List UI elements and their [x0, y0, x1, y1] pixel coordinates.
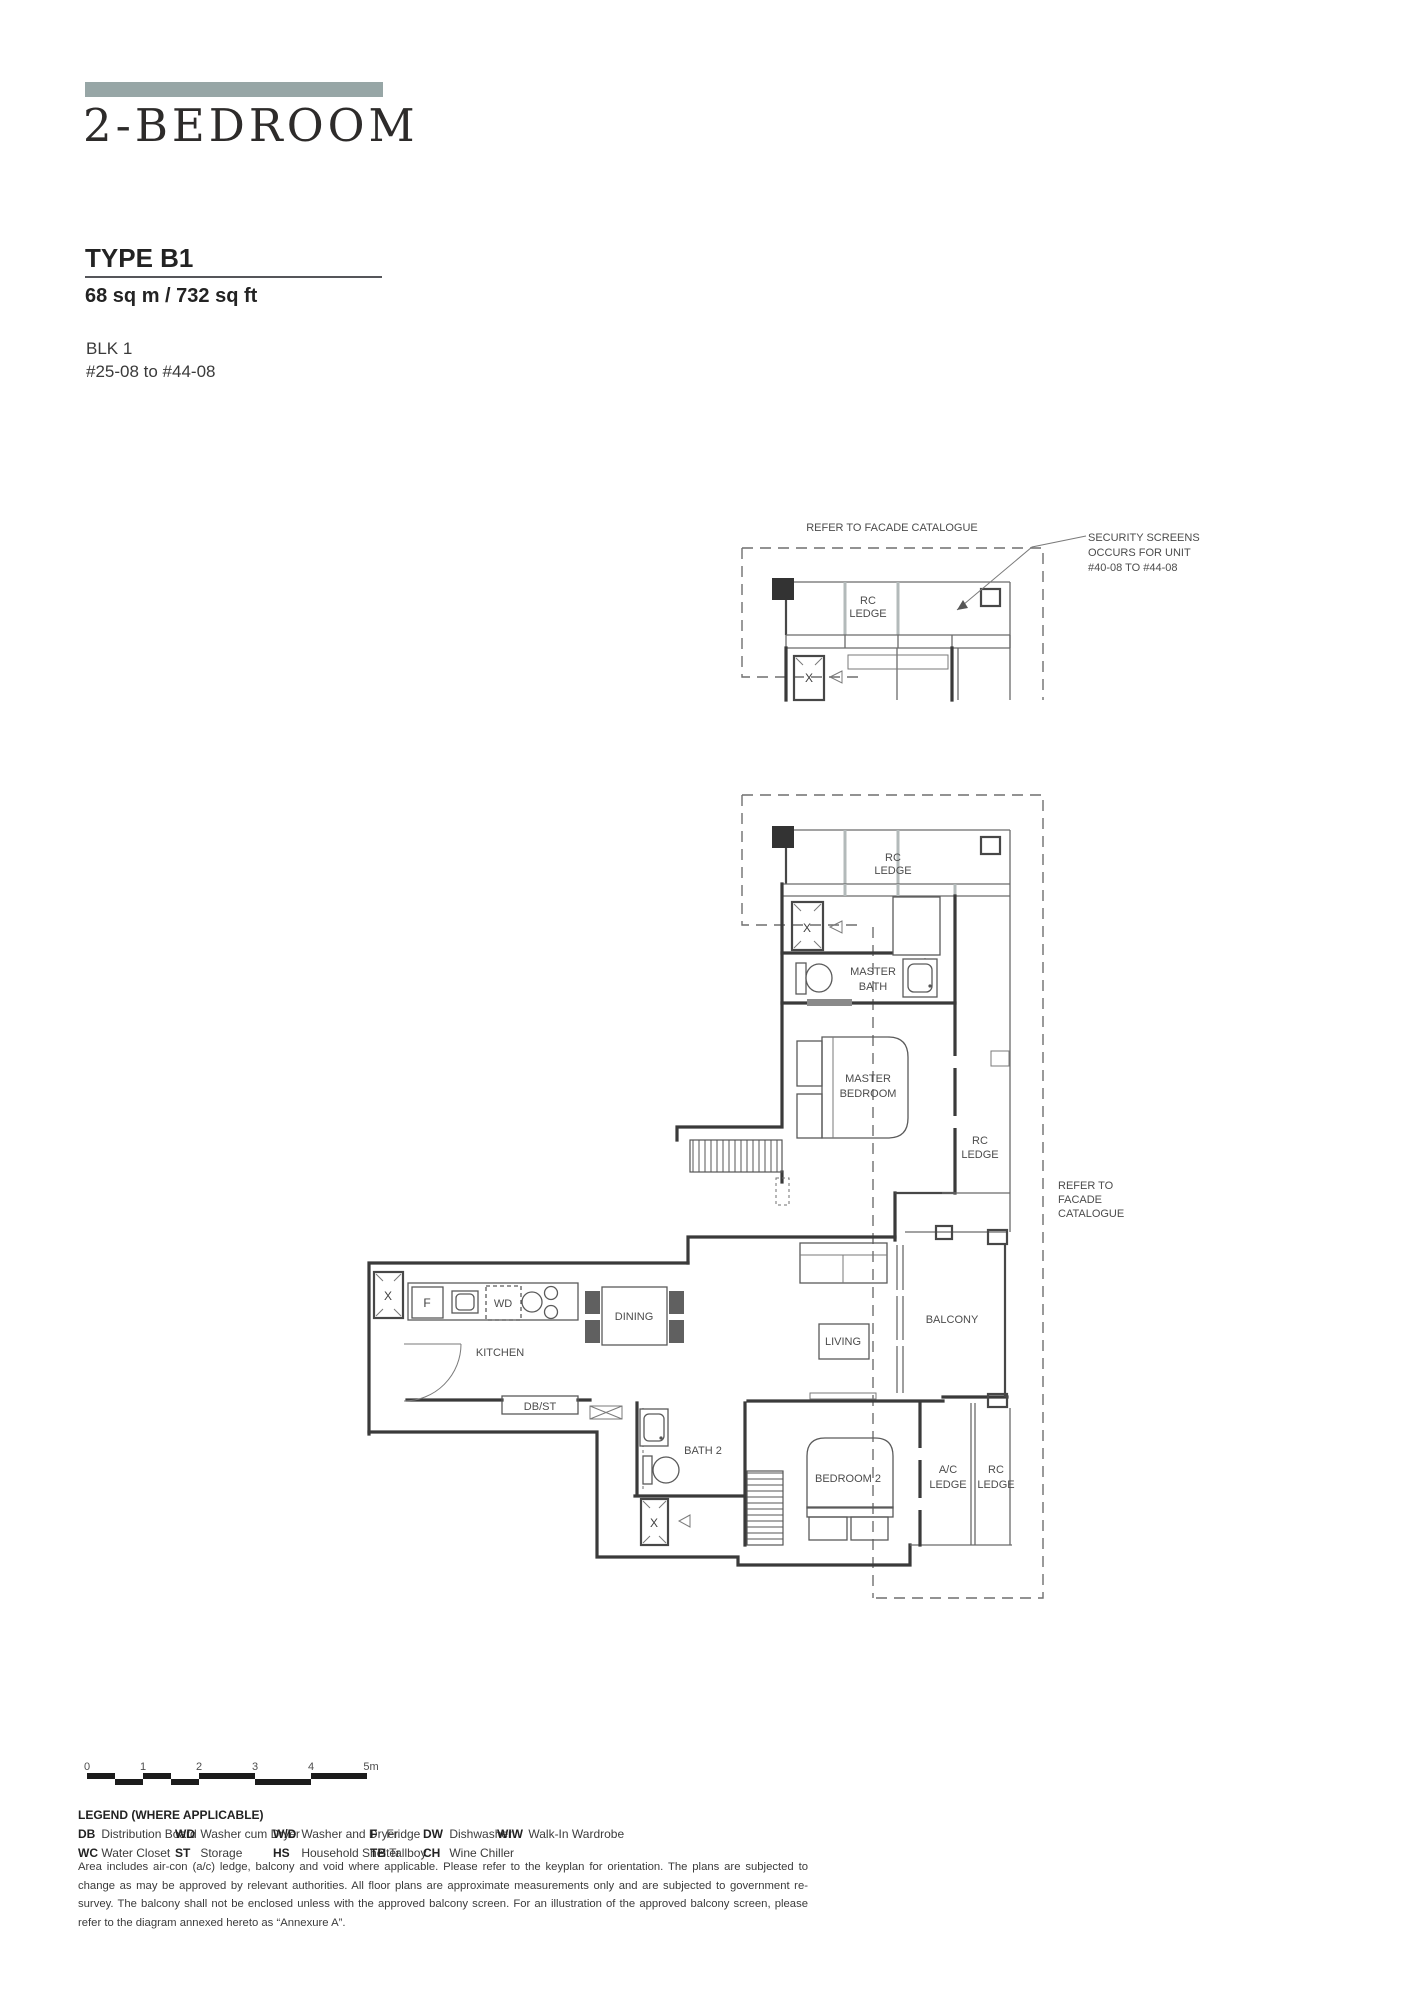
- rc-ledge-top-label: LEDGE: [874, 865, 911, 877]
- security-screens-note: SECURITY SCREENS: [1088, 532, 1200, 544]
- entry-door: [404, 1344, 461, 1401]
- legend-abbr: W/D: [273, 1827, 298, 1841]
- floor-plan-drawing: REFER TO FACADE CATALOGUE X RC LEDGE SEC…: [0, 0, 1414, 2000]
- bath2-ac-box: X: [641, 1499, 668, 1545]
- sink-tap: [659, 1436, 662, 1439]
- kitchen-label: KITCHEN: [476, 1347, 524, 1359]
- master-bath-label: MASTER: [850, 966, 896, 978]
- stove-burner: [545, 1287, 558, 1300]
- window-gap: [914, 1498, 926, 1510]
- refer-facade-right-label: CATALOGUE: [1058, 1208, 1124, 1220]
- direction-arrow: [679, 1515, 690, 1527]
- svg-text:X: X: [803, 921, 811, 935]
- db-storage: DB/ST: [502, 1396, 578, 1414]
- toilet-tank: [643, 1456, 652, 1484]
- ac-ledge-box-partial: X: [794, 656, 824, 700]
- scale-tick: 4: [308, 1761, 314, 1773]
- scale-tick: 1: [140, 1761, 146, 1773]
- stove-burner: [545, 1306, 558, 1319]
- scale-tick: 2: [196, 1761, 202, 1773]
- legend-item: F Fridge: [370, 1827, 420, 1841]
- dining-label: DINING: [615, 1311, 654, 1323]
- window-gap: [914, 1448, 926, 1460]
- rc-ledge-label: LEDGE: [849, 608, 886, 620]
- bath2-fixtures: [640, 1409, 679, 1484]
- svg-text:WD: WD: [494, 1298, 512, 1310]
- bath2-label: BATH 2: [684, 1445, 722, 1457]
- kitchen-ac-box: X: [374, 1272, 403, 1318]
- dining-chair: [669, 1291, 684, 1314]
- window-band: [786, 635, 1010, 648]
- legend-abbr: WD: [175, 1827, 197, 1841]
- wardrobe: [851, 1517, 888, 1540]
- legend-item: WIW Walk-In Wardrobe: [497, 1827, 624, 1841]
- master-bedroom-label: MASTER: [845, 1073, 891, 1085]
- column-marker: [991, 1051, 1009, 1066]
- floorplan-page: 2-BEDROOM TYPE B1 68 sq m / 732 sq ft BL…: [0, 0, 1414, 2000]
- column-marker: [772, 578, 794, 600]
- main-unit-plan: RC LEDGE: [369, 795, 1124, 1598]
- legend-heading: LEGEND (WHERE APPLICABLE): [78, 1808, 264, 1822]
- security-screens-note: #40-08 TO #44-08: [1088, 562, 1178, 574]
- svg-text:F: F: [423, 1296, 430, 1310]
- window-gap: [949, 1116, 961, 1128]
- damper-symbol: [590, 1406, 622, 1419]
- toilet-bowl: [653, 1457, 679, 1483]
- shower: [893, 897, 940, 955]
- legend-desc: Walk-In Wardrobe: [528, 1827, 624, 1841]
- window-band: [782, 884, 1010, 896]
- window-gap: [949, 1056, 961, 1068]
- slider-break: [895, 1290, 905, 1296]
- column-marker: [772, 826, 794, 848]
- bedroom2-bed: [807, 1438, 893, 1540]
- side-table: [797, 1094, 822, 1138]
- balcony-label: BALCONY: [926, 1314, 979, 1326]
- direction-arrow: [830, 921, 842, 933]
- bay-window-hatch: [690, 1140, 782, 1172]
- rc-ledge-right-label: LEDGE: [961, 1149, 998, 1161]
- rc-ledge-right-label: RC: [972, 1135, 988, 1147]
- refer-facade-right-label: REFER TO: [1058, 1180, 1114, 1192]
- disclaimer-text: Area includes air-con (a/c) ledge, balco…: [78, 1858, 808, 1932]
- scale-tick: 5m: [363, 1761, 378, 1773]
- legend-abbr: DW: [423, 1827, 446, 1841]
- master-bath-label: BATH: [859, 981, 888, 993]
- master-bedroom-label: BEDROOM: [840, 1088, 897, 1100]
- ac-ledge-label: A/C: [939, 1464, 957, 1476]
- leader-line: [957, 536, 1086, 610]
- scale-bar: 0 1 2 3 4 5m: [84, 1761, 379, 1785]
- rc-ledge-bottom-label: RC: [988, 1464, 1004, 1476]
- legend-abbr: DB: [78, 1827, 98, 1841]
- side-table: [797, 1041, 822, 1086]
- column-marker: [981, 589, 1000, 606]
- scale-tick: 0: [84, 1761, 90, 1773]
- slider-break: [895, 1340, 905, 1346]
- legend-abbr: F: [370, 1827, 383, 1841]
- bedroom2-window: [810, 1393, 876, 1399]
- door-swing-dashed: [643, 958, 925, 1492]
- wardrobe: [809, 1517, 847, 1540]
- ac-ledge-label: LEDGE: [929, 1479, 966, 1491]
- dining-chair: [585, 1320, 600, 1343]
- rc-ledge-top-label: RC: [885, 852, 901, 864]
- sink-tap: [928, 984, 931, 987]
- sliding-door: [807, 999, 852, 1006]
- scale-tick: 3: [252, 1761, 258, 1773]
- refer-facade-right-label: FACADE: [1058, 1194, 1102, 1206]
- rc-ledge-label: RC: [860, 595, 876, 607]
- bedroom2-label: BEDROOM 2: [815, 1473, 881, 1485]
- svg-text:X: X: [650, 1516, 658, 1530]
- dining-chair: [669, 1320, 684, 1343]
- household-shelter-hatch: [747, 1471, 783, 1545]
- stove-burner: [522, 1292, 542, 1312]
- security-screens-note: OCCURS FOR UNIT: [1088, 547, 1191, 559]
- refer-facade-top-label: REFER TO FACADE CATALOGUE: [806, 522, 978, 534]
- master-ac-box: X: [792, 902, 823, 950]
- scale-bar-blocks: [87, 1773, 367, 1785]
- balcony-slider: [895, 1245, 905, 1393]
- column-marker: [981, 837, 1000, 854]
- svg-text:DB/ST: DB/ST: [524, 1401, 557, 1413]
- toilet-bowl: [806, 964, 832, 992]
- svg-text:X: X: [384, 1289, 392, 1303]
- legend-abbr: WIW: [497, 1827, 525, 1841]
- kitchen-fixtures: F WD: [408, 1283, 578, 1320]
- svg-text:X: X: [805, 671, 813, 685]
- legend-desc: Fridge: [386, 1827, 420, 1841]
- kitchen-sink-basin: [456, 1294, 474, 1310]
- dining-chair: [585, 1291, 600, 1314]
- keyplan-fragment: REFER TO FACADE CATALOGUE X RC LEDGE SEC…: [742, 522, 1200, 700]
- toilet-tank: [796, 963, 806, 994]
- rc-ledge-bottom-label: LEDGE: [977, 1479, 1014, 1491]
- living-label: LIVING: [825, 1336, 861, 1348]
